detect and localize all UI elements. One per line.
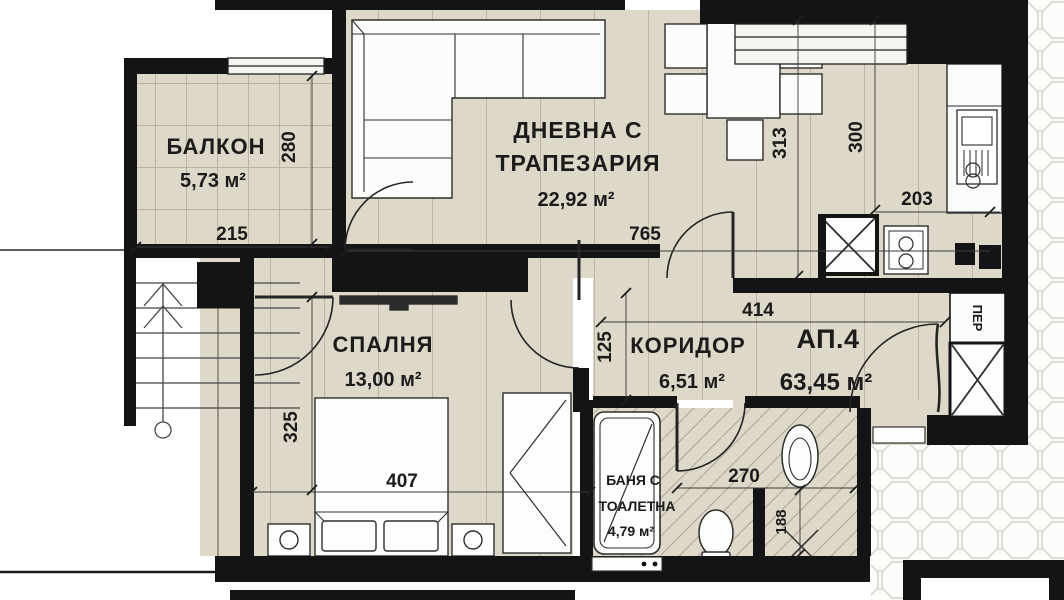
dim-bedroom-height: 325 (281, 411, 302, 443)
bedroom-area: 13,00 м² (344, 369, 421, 391)
dim-kitchen-right: 300 (846, 121, 867, 153)
dim-kitchen-left: 313 (770, 127, 791, 159)
wall (593, 396, 677, 408)
wardrobe (503, 393, 571, 553)
wall (753, 488, 765, 556)
toilet (699, 510, 733, 556)
dining-chair (727, 120, 763, 160)
wall (197, 262, 243, 308)
wall (124, 254, 136, 426)
tv (340, 296, 457, 304)
wall (733, 278, 1028, 293)
wall (230, 590, 575, 600)
washbasin (782, 425, 818, 487)
bath-cabinet (592, 557, 662, 571)
wall (124, 58, 137, 256)
stairs-start-marker (155, 422, 171, 438)
dim-corridor-width: 414 (742, 300, 774, 321)
dim-bedroom-width: 407 (386, 471, 418, 492)
dining-chair (665, 74, 707, 114)
wall (857, 408, 871, 556)
wall (745, 396, 860, 408)
dim-bathroom-width: 270 (728, 466, 760, 487)
dim-balcony-width: 215 (216, 224, 248, 245)
washer-closet-label: ПЕР (970, 305, 985, 332)
entry-threshold (873, 427, 925, 443)
wall (215, 0, 625, 10)
pillow (322, 521, 376, 551)
floor-plan-page: БАЛКОН 5,73 м² ДНЕВНА С ТРАПЕЗАРИЯ 22,92… (0, 0, 1064, 600)
dining-chair (780, 74, 822, 114)
living-label-line2: ТРАПЕЗАРИЯ (496, 150, 661, 176)
corridor-label: КОРИДОР (630, 333, 746, 358)
stove (884, 226, 928, 274)
nightstand (268, 524, 310, 556)
dim-corridor-height: 125 (595, 331, 616, 363)
bathroom-area: 4,79 м² (608, 523, 654, 539)
bedroom-label: СПАЛНЯ (333, 332, 434, 357)
dim-kitchen-width: 203 (901, 189, 933, 210)
wall (332, 0, 346, 252)
wall (907, 24, 1005, 64)
corridor-area: 6,51 м² (659, 371, 725, 393)
balcony-label: БАЛКОН (167, 134, 266, 159)
living-area: 22,92 м² (537, 189, 614, 211)
dining-chair (665, 24, 707, 68)
nightstand (452, 524, 494, 556)
apartment-area: 63,45 м² (780, 369, 872, 396)
living-label-line1: ДНЕВНА С (513, 117, 642, 143)
kitchen-window (735, 24, 907, 64)
balcony-area: 5,73 м² (180, 170, 246, 192)
dim-niche-height: 188 (773, 509, 790, 534)
wall (580, 400, 593, 556)
wall (700, 0, 1005, 24)
dim-balcony-height: 280 (279, 131, 300, 163)
wall (332, 252, 528, 292)
wall (215, 556, 870, 582)
wall (927, 415, 1028, 445)
bathroom-label-line2: ТОАЛЕТНА (599, 498, 676, 514)
wall (818, 216, 826, 278)
floor-plan-drawing: БАЛКОН 5,73 м² ДНЕВНА С ТРАПЕЗАРИЯ 22,92… (0, 0, 1064, 600)
bathroom-label-line1: БАНЯ С (606, 472, 660, 488)
dim-living-width: 765 (629, 224, 661, 245)
apartment-label: АП.4 (796, 324, 859, 354)
pillow (384, 521, 438, 551)
